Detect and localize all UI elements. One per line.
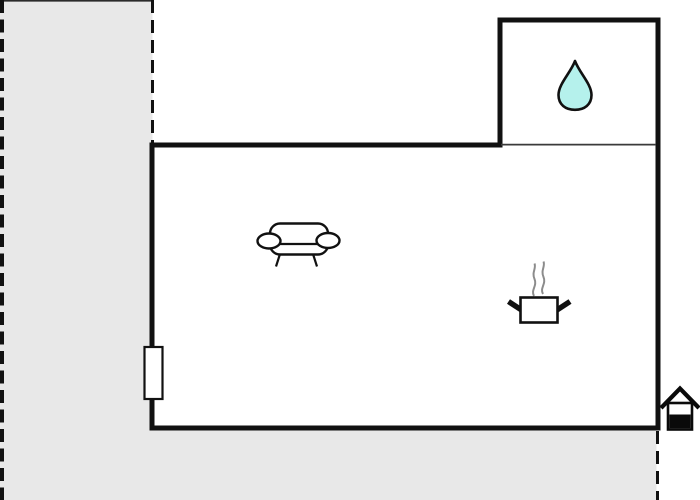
entrance-house-icon xyxy=(663,389,698,430)
floorplan-canvas xyxy=(0,0,700,500)
floorplan xyxy=(0,0,700,500)
surroundings-left-area xyxy=(0,0,153,500)
window-marker xyxy=(145,347,163,399)
surroundings-bottom-area xyxy=(0,431,657,500)
